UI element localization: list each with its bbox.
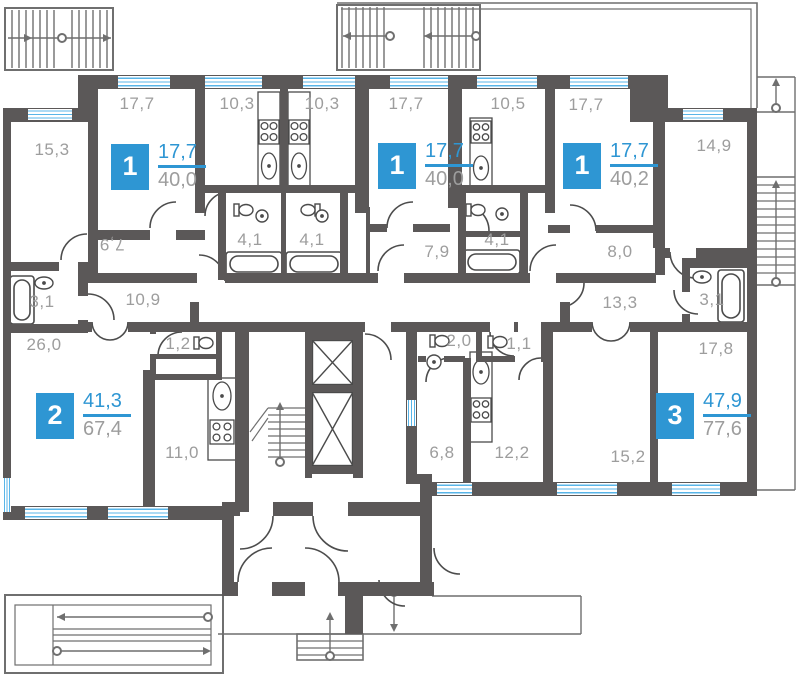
apartment-areas: 17,740,0 <box>158 142 206 191</box>
apartment-info: 117,740,2 <box>563 141 658 190</box>
window <box>205 76 262 88</box>
window <box>28 109 72 120</box>
room-area-label: 4,1 <box>237 230 262 250</box>
window <box>683 109 723 120</box>
wall <box>444 356 465 362</box>
area-divider <box>703 414 751 417</box>
total-area-value: 67,4 <box>83 419 122 440</box>
room-area-label: 7,9 <box>99 234 124 254</box>
wall <box>190 302 199 332</box>
window <box>672 483 720 495</box>
wall <box>3 108 11 520</box>
wall <box>218 185 226 280</box>
room-area-label: 1,1 <box>506 334 531 354</box>
room-area-label: 17,7 <box>388 94 423 114</box>
wall <box>305 385 363 392</box>
floor-plan: 15,317,710,310,317,710,517,714,97,94,14,… <box>0 0 800 675</box>
wall <box>280 88 288 190</box>
window <box>3 478 11 512</box>
total-area-value: 40,0 <box>425 169 464 190</box>
room-area-label: 10,3 <box>304 94 339 114</box>
wall <box>418 356 426 362</box>
wall <box>340 185 348 280</box>
area-divider <box>610 164 658 167</box>
room-area-label: 1,2 <box>165 334 190 354</box>
room-area-label: 10,5 <box>490 94 525 114</box>
wall <box>345 582 363 634</box>
wall <box>11 324 88 333</box>
room-area-label: 26,0 <box>26 335 61 355</box>
wall <box>404 273 530 283</box>
wall <box>413 224 450 232</box>
apartment-number-badge: 1 <box>111 144 149 190</box>
window <box>108 507 168 519</box>
wall <box>11 262 59 271</box>
room-area-label: 10,3 <box>219 94 254 114</box>
wall <box>222 582 238 596</box>
wall <box>150 374 220 380</box>
total-area-value: 77,6 <box>703 419 742 440</box>
room-area-label: 13,3 <box>602 293 637 313</box>
area-divider <box>83 414 131 417</box>
room-area-label: 7,9 <box>424 242 449 262</box>
window <box>303 76 355 88</box>
wall <box>481 356 515 362</box>
wall <box>556 273 656 283</box>
area-divider <box>425 164 473 167</box>
living-area-value: 17,7 <box>610 141 649 162</box>
window <box>477 76 537 88</box>
living-area-value: 17,7 <box>425 141 464 162</box>
room-area-label: 15,3 <box>34 140 69 160</box>
wall <box>353 328 363 478</box>
room-area-label: 17,7 <box>568 95 603 115</box>
wall <box>150 330 156 334</box>
room-area-label: 11,0 <box>165 443 199 463</box>
wall <box>682 314 690 324</box>
wall <box>273 502 313 516</box>
apartment-number-badge: 2 <box>36 393 74 439</box>
wall <box>78 262 88 296</box>
window <box>25 507 87 519</box>
apartment-info: 241,367,4 <box>36 391 131 440</box>
wall <box>305 328 312 478</box>
wall <box>281 193 286 275</box>
window <box>557 483 617 495</box>
wall <box>463 358 471 482</box>
wall <box>560 302 570 332</box>
living-area-value: 41,3 <box>83 391 122 412</box>
wall <box>514 322 518 332</box>
wall <box>696 248 757 258</box>
wall <box>88 322 92 332</box>
room-area-label: 4,1 <box>484 230 509 250</box>
room-area-label: 3,1 <box>29 292 54 312</box>
wall <box>655 233 665 275</box>
apartment-info: 117,740,0 <box>111 142 206 191</box>
apartment-number-badge: 1 <box>378 143 416 189</box>
apartment-areas: 17,740,0 <box>425 141 473 190</box>
wall <box>548 225 570 233</box>
room-area-label: 6,8 <box>429 443 454 463</box>
elevator-icon <box>312 340 353 466</box>
living-area-value: 47,9 <box>703 391 742 412</box>
apartment-number-badge: 3 <box>656 393 694 439</box>
window <box>390 76 448 88</box>
wall <box>205 185 355 193</box>
room-area-label: 14,9 <box>696 136 731 156</box>
wall <box>305 466 363 474</box>
window <box>118 76 170 88</box>
area-divider <box>158 165 206 168</box>
door-arc <box>61 192 698 606</box>
room-area-label: 2,0 <box>446 331 471 351</box>
wall <box>88 88 98 283</box>
wall <box>682 268 690 292</box>
wall <box>150 354 220 359</box>
wall <box>366 207 370 283</box>
room-area-label: 17,7 <box>119 94 154 114</box>
window <box>437 483 472 495</box>
wall <box>545 88 555 213</box>
window <box>570 76 628 88</box>
wall <box>370 224 387 232</box>
apartment-info: 347,977,6 <box>656 391 751 440</box>
wall <box>665 248 670 258</box>
wall <box>225 273 378 283</box>
living-area-value: 17,7 <box>158 142 197 163</box>
total-area-value: 40,0 <box>158 170 197 191</box>
room-area-label: 10,9 <box>125 290 160 310</box>
wall <box>596 225 663 233</box>
wall <box>420 482 432 596</box>
wall <box>541 328 547 362</box>
room-area-label: 4,1 <box>299 230 324 250</box>
apartment-areas: 47,977,6 <box>703 391 751 440</box>
apartment-number-badge: 1 <box>563 143 601 189</box>
wall <box>682 258 747 268</box>
room-area-label: 17,8 <box>698 339 733 359</box>
total-area-value: 40,2 <box>610 169 649 190</box>
wall <box>88 273 197 283</box>
wall <box>272 582 305 596</box>
wall <box>143 370 155 506</box>
wall <box>355 88 369 213</box>
apartment-areas: 17,740,2 <box>610 141 658 190</box>
wall <box>235 330 249 512</box>
room-area-label: 8,0 <box>607 242 632 262</box>
room-area-label: 3,1 <box>699 290 724 310</box>
window <box>407 400 416 426</box>
apartment-areas: 41,367,4 <box>83 391 131 440</box>
room-area-label: 15,2 <box>610 447 645 467</box>
apartment-info: 117,740,0 <box>378 141 473 190</box>
room-area-label: 12,2 <box>494 443 529 463</box>
wall <box>176 230 205 240</box>
wall <box>406 474 432 484</box>
